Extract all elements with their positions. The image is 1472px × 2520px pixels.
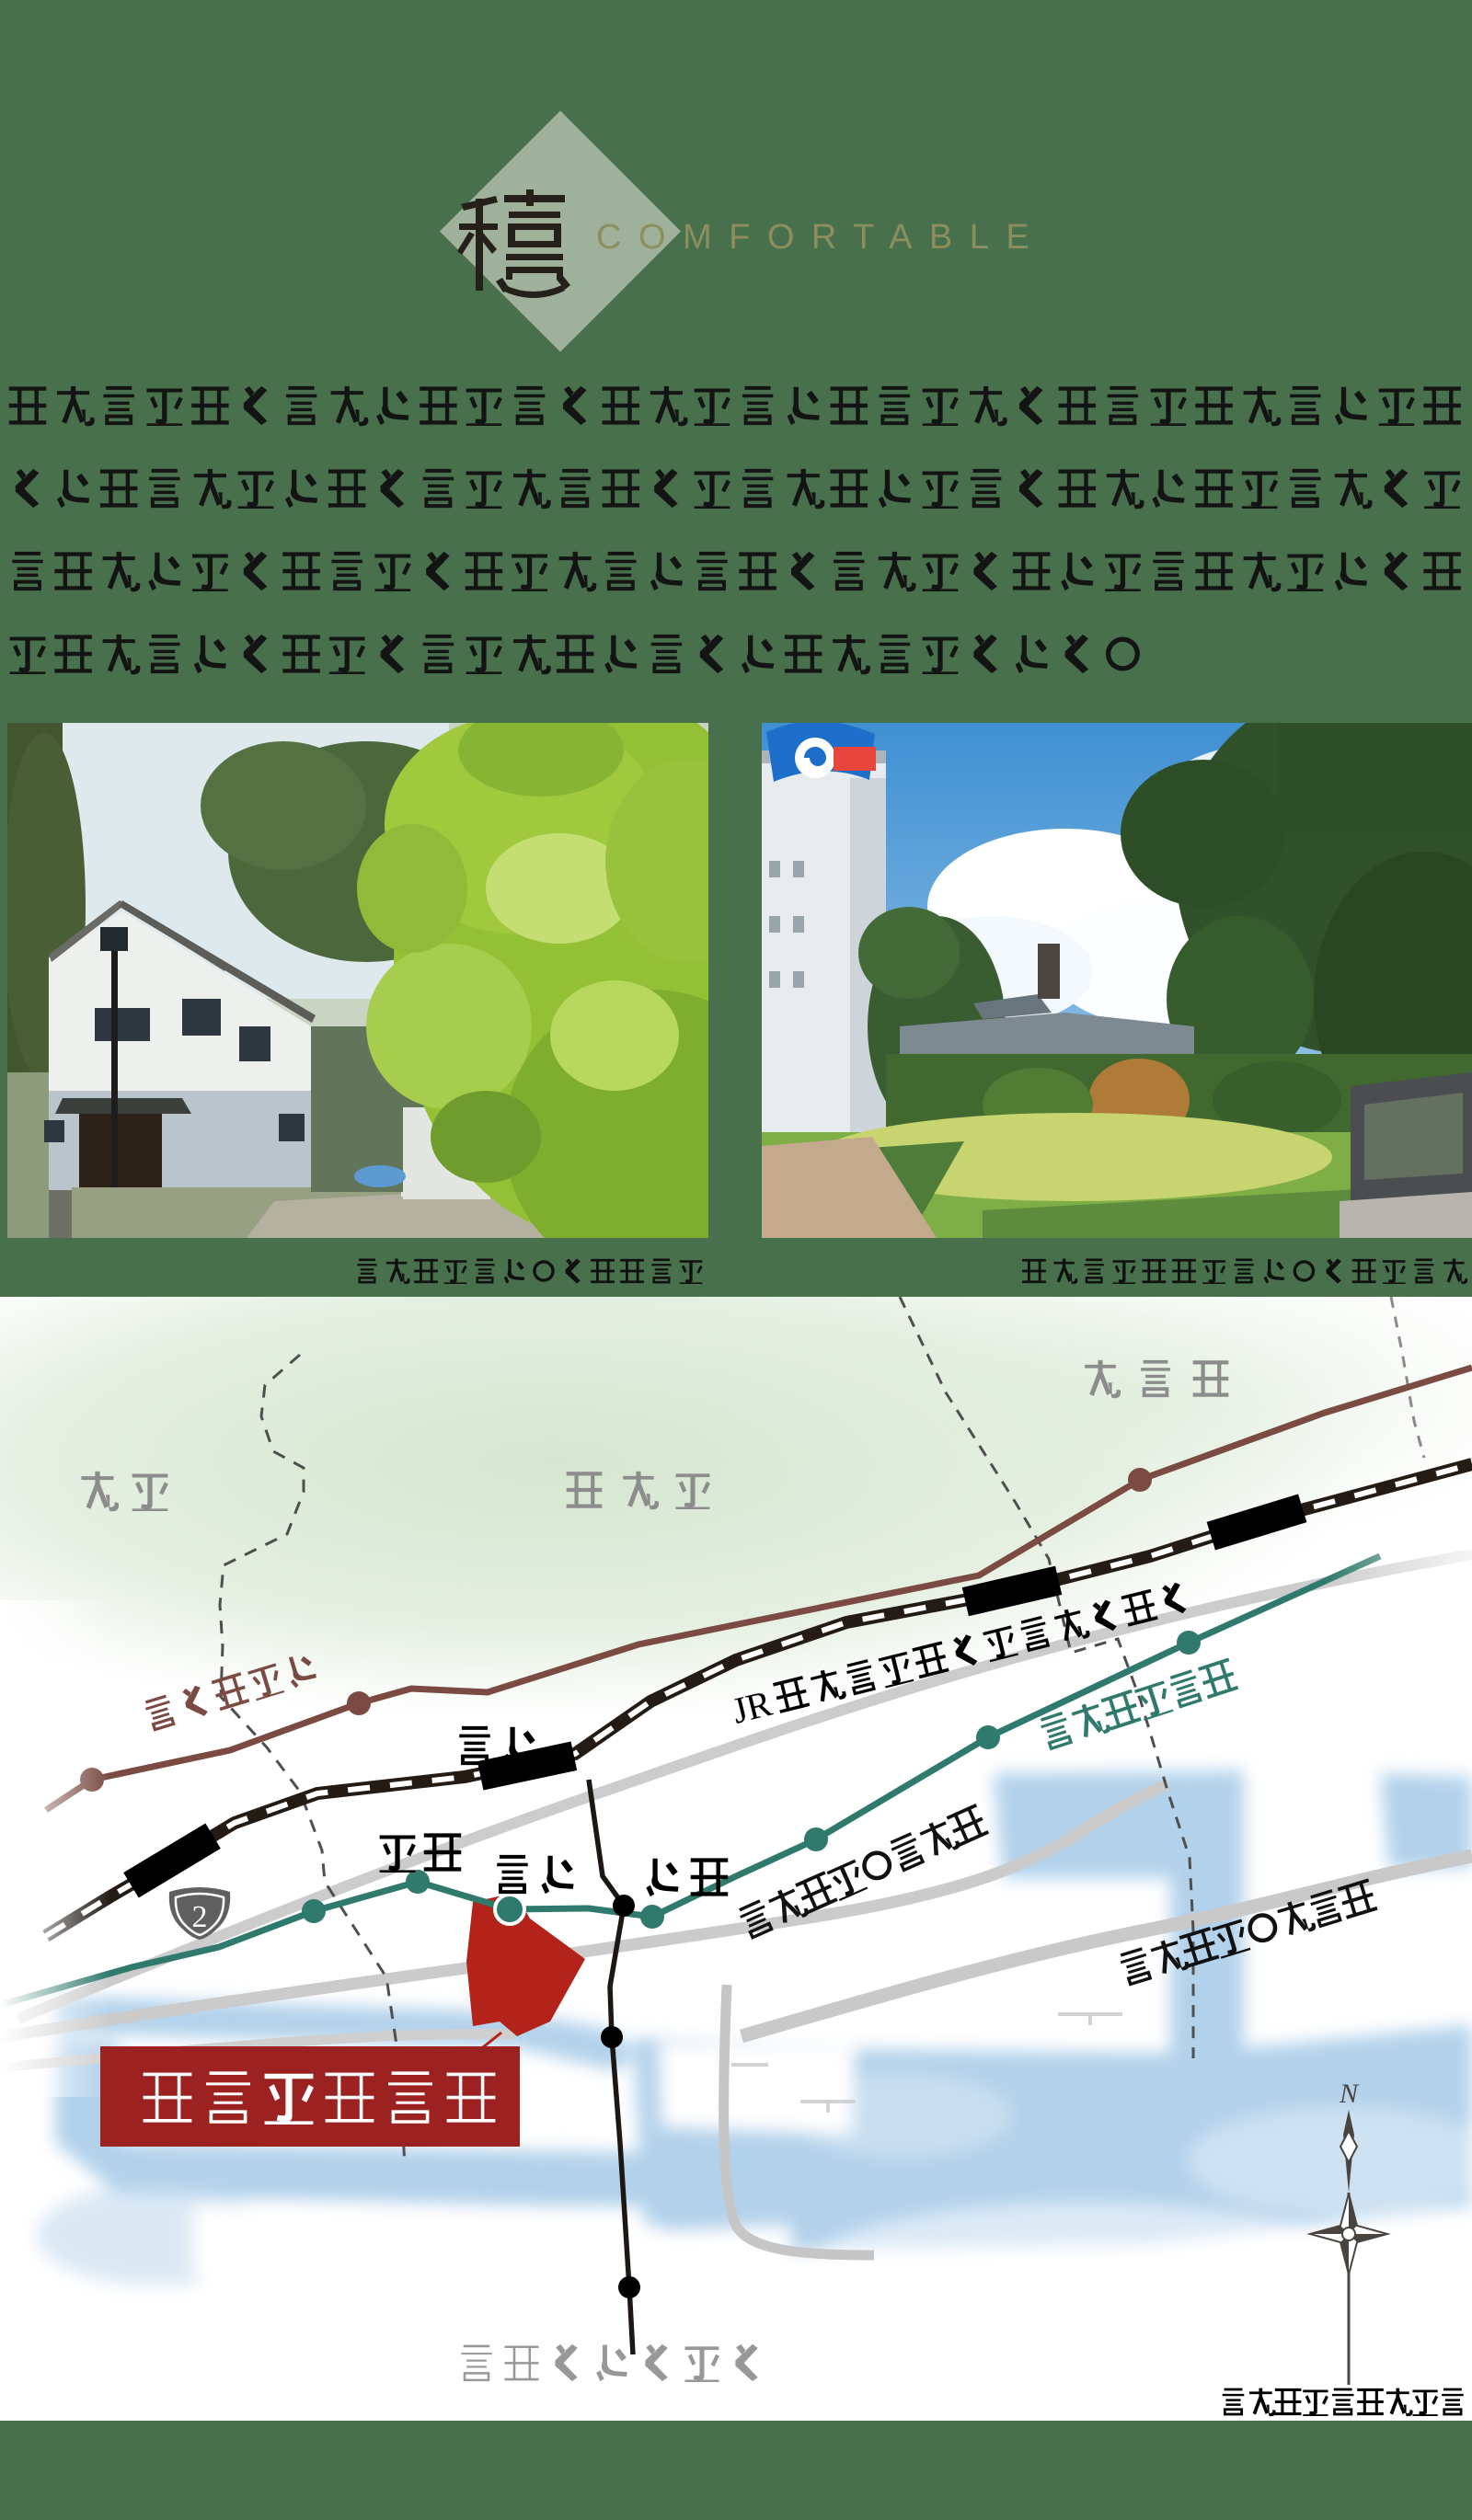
svg-text:2: 2 [192,1900,208,1934]
svg-text:N: N [1339,2079,1360,2109]
